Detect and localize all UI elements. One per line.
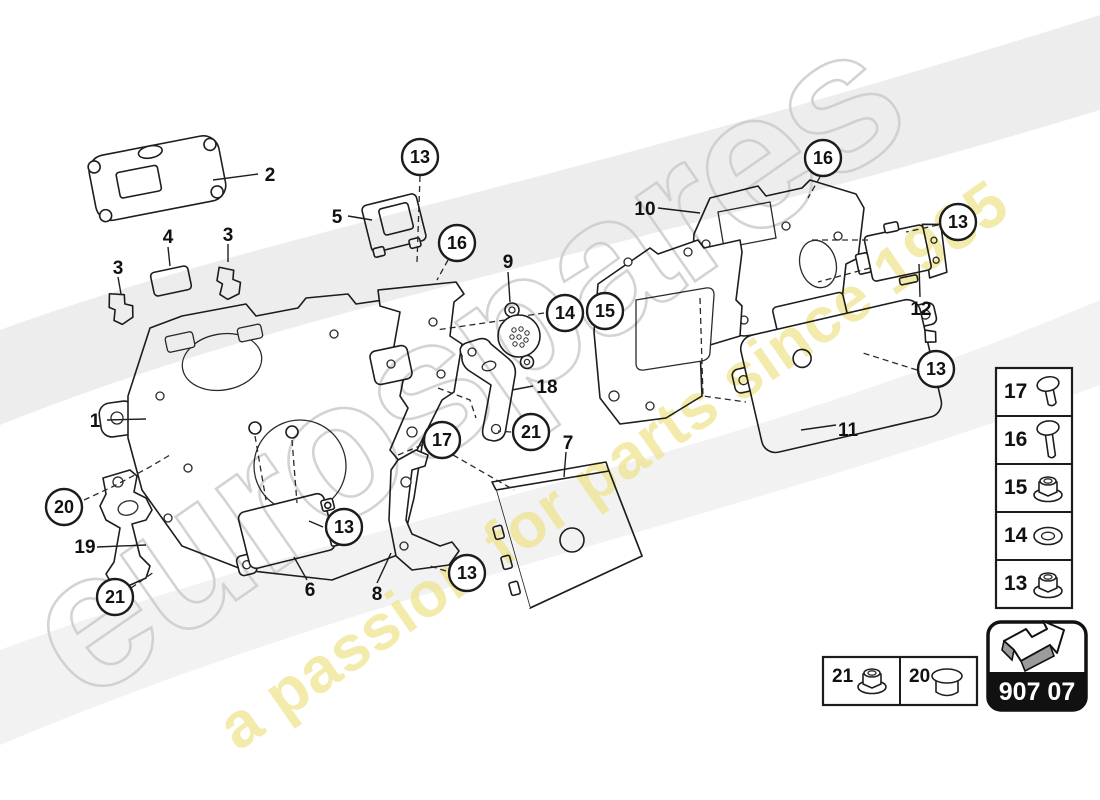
part-label-5[interactable]: 5 <box>332 207 343 228</box>
callout-17[interactable]: 17 <box>424 422 460 458</box>
svg-text:21: 21 <box>521 422 541 442</box>
part-label-1[interactable]: 1 <box>90 411 101 432</box>
svg-text:17: 17 <box>1004 380 1027 403</box>
callout-16-a[interactable]: 16 <box>439 225 475 261</box>
parts-diagram-page: eurospares a passion for parts since 198… <box>0 0 1100 800</box>
callout-13-e[interactable]: 13 <box>449 555 485 591</box>
part-label-11[interactable]: 11 <box>838 420 859 441</box>
svg-text:20: 20 <box>54 497 74 517</box>
svg-text:13: 13 <box>334 517 354 537</box>
svg-text:15: 15 <box>1004 476 1028 499</box>
part-label-3a[interactable]: 3 <box>113 258 124 279</box>
callout-15[interactable]: 15 <box>587 293 623 329</box>
callout-14[interactable]: 14 <box>547 295 583 331</box>
callout-21-b[interactable]: 21 <box>97 579 133 615</box>
svg-text:13: 13 <box>926 359 946 379</box>
callout-21-a[interactable]: 21 <box>513 414 549 450</box>
callout-13-a[interactable]: 13 <box>402 139 438 175</box>
part-2-control-unit <box>86 133 229 229</box>
svg-text:13: 13 <box>948 212 968 232</box>
svg-text:15: 15 <box>595 301 615 321</box>
part-label-6[interactable]: 6 <box>305 580 316 601</box>
diagram-code-box[interactable]: 907 07 <box>988 621 1086 710</box>
svg-text:16: 16 <box>447 233 467 253</box>
svg-text:13: 13 <box>410 147 430 167</box>
svg-text:13: 13 <box>457 563 477 583</box>
part-label-19[interactable]: 19 <box>74 537 95 558</box>
part-label-2[interactable]: 2 <box>265 165 276 186</box>
svg-text:16: 16 <box>1004 428 1027 451</box>
svg-text:13: 13 <box>1004 572 1027 595</box>
svg-text:17: 17 <box>432 430 452 450</box>
svg-text:14: 14 <box>555 303 575 323</box>
bushing-icon <box>932 669 962 696</box>
part-label-8[interactable]: 8 <box>372 584 383 605</box>
part-label-10[interactable]: 10 <box>634 199 655 220</box>
callout-16-b[interactable]: 16 <box>805 140 841 176</box>
fastener-legend: 17 16 15 14 13 <box>996 368 1072 608</box>
part-label-7[interactable]: 7 <box>563 433 574 454</box>
svg-text:16: 16 <box>813 148 833 168</box>
electrics-parts-diagram: eurospares a passion for parts since 198… <box>0 0 1100 800</box>
callout-13-d[interactable]: 13 <box>326 509 362 545</box>
svg-text:20: 20 <box>909 666 930 687</box>
part-label-3b[interactable]: 3 <box>223 225 234 246</box>
diagram-code: 907 07 <box>999 678 1075 706</box>
svg-text:21: 21 <box>832 666 854 687</box>
part-label-9[interactable]: 9 <box>503 252 514 273</box>
part-label-4[interactable]: 4 <box>163 227 174 248</box>
svg-text:21: 21 <box>105 587 125 607</box>
part-label-12[interactable]: 12 <box>910 299 931 320</box>
callout-13-c[interactable]: 13 <box>918 351 954 387</box>
part-label-18[interactable]: 18 <box>536 377 557 398</box>
washer-icon <box>1034 528 1062 545</box>
hardware-strip: 21 20 <box>823 657 977 705</box>
svg-text:14: 14 <box>1004 524 1028 547</box>
callout-13-b[interactable]: 13 <box>940 204 976 240</box>
callout-20[interactable]: 20 <box>46 489 82 525</box>
